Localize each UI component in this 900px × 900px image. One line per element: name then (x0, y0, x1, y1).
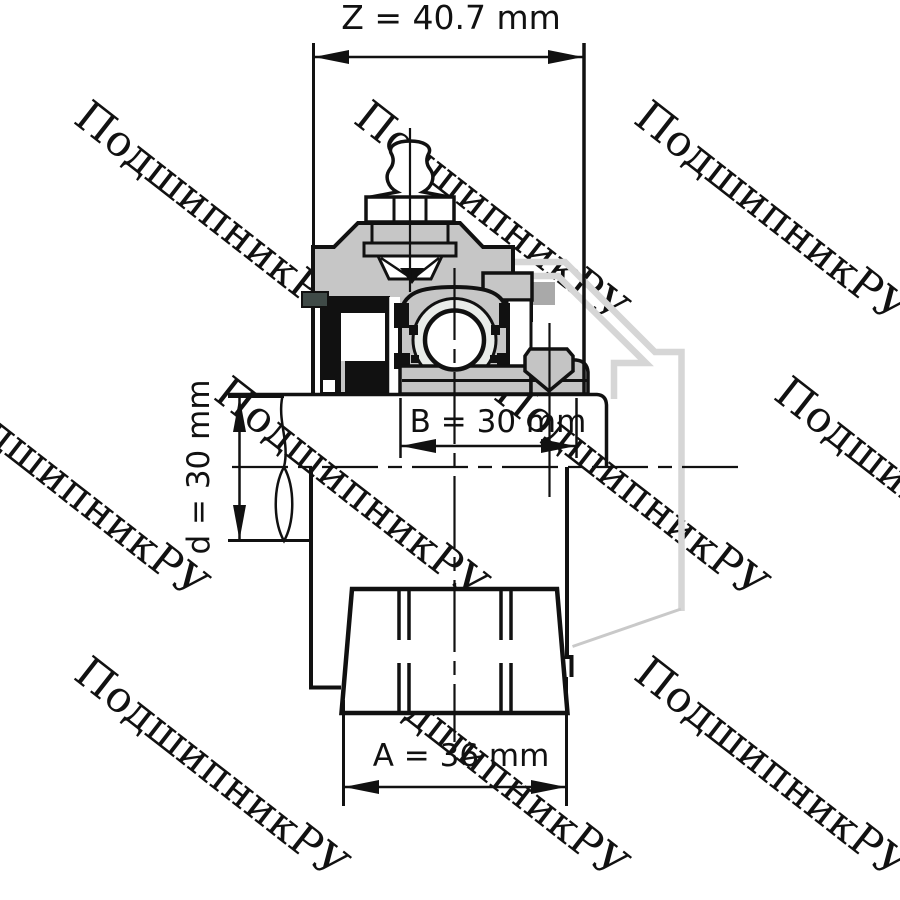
left-seal-assembly (302, 292, 400, 394)
seal-foot-notch (323, 380, 335, 392)
shaft-break-lens (276, 467, 293, 541)
seal-shield-block (499, 303, 510, 328)
seal-bottom-block (345, 361, 390, 394)
seal-window (341, 313, 386, 361)
race-shoulder-notch (409, 325, 418, 335)
dimension-B: B = 30 mm (401, 398, 587, 458)
phantom-bolt-section (532, 282, 555, 305)
dimension-label-Z: Z = 40.7 mm (341, 0, 561, 37)
housing-lower-right-edge (567, 467, 572, 677)
arrowhead (344, 780, 379, 794)
race-shoulder-notch (491, 325, 500, 335)
watermark-text: ПодшипникРУ (625, 91, 900, 334)
arrowhead (401, 439, 436, 453)
dimension-label-d: d = 30 mm (181, 379, 217, 554)
slinger-ring (302, 292, 328, 307)
watermark-text: ПодшипникРУ (765, 367, 900, 610)
race-shoulder-notch (411, 355, 419, 363)
ball-bearing-insert (394, 287, 588, 394)
watermark-text: ПодшипникРУ (625, 647, 900, 890)
seal-gap-strip (315, 297, 320, 394)
bearing-unit-drawing: ПодшипникРУ ПодшипникРУ ПодшипникРУ Подш… (0, 0, 900, 900)
watermark-text: ПодшипникРУ (65, 647, 357, 890)
arrowhead (314, 50, 349, 64)
dimension-label-A: A = 36 mm (373, 738, 550, 774)
race-shoulder-notch (490, 355, 498, 363)
arrowhead (233, 505, 246, 540)
technical-drawing-page: ПодшипникРУ ПодшипникРУ ПодшипникРУ Подш… (0, 0, 900, 900)
phantom-lower-diagonal (573, 609, 682, 647)
dimension-label-B: B = 30 mm (410, 404, 587, 440)
arrowhead (548, 50, 583, 64)
seal-shield-block (394, 303, 409, 328)
